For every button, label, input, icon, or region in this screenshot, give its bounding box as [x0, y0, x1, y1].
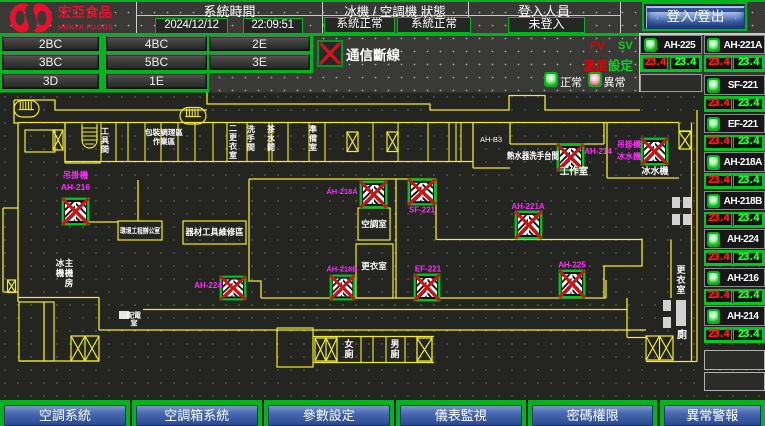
- svg-text:更衣室: 更衣室: [361, 261, 387, 271]
- svg-text:SF-221: SF-221: [409, 206, 436, 215]
- svg-text:更: 更: [229, 132, 238, 142]
- svg-text:二: 二: [229, 124, 237, 133]
- svg-text:冰: 冰: [56, 258, 65, 268]
- svg-text:EF-221: EF-221: [415, 265, 442, 274]
- svg-text:間: 間: [267, 143, 275, 152]
- svg-text:具: 具: [101, 136, 109, 145]
- svg-text:室: 室: [309, 142, 317, 152]
- svg-text:機: 機: [65, 268, 74, 278]
- svg-text:配電: 配電: [127, 311, 141, 320]
- svg-text:廁: 廁: [344, 348, 353, 359]
- svg-text:室: 室: [131, 319, 138, 328]
- svg-text:主: 主: [65, 258, 74, 268]
- svg-text:器材工具維修區: 器材工具維修區: [185, 227, 244, 237]
- svg-text:手: 手: [247, 133, 255, 143]
- svg-text:衣: 衣: [229, 141, 237, 151]
- svg-text:女: 女: [344, 338, 353, 349]
- svg-text:吊掛機: 吊掛機: [617, 139, 641, 149]
- svg-text:環境工程辦公室: 環境工程辦公室: [120, 226, 160, 235]
- svg-text:廁: 廁: [677, 328, 687, 341]
- svg-text:AH-214: AH-214: [584, 147, 612, 156]
- svg-text:準: 準: [309, 124, 317, 134]
- svg-text:廁: 廁: [390, 348, 399, 359]
- svg-text:男: 男: [390, 339, 399, 349]
- svg-text:備: 備: [309, 133, 317, 143]
- svg-text:AH-224: AH-224: [194, 281, 222, 290]
- svg-text:熱水器洗手台間: 熱水器洗手台間: [507, 150, 559, 161]
- svg-text:工作室: 工作室: [560, 166, 589, 178]
- svg-text:冰水機: 冰水機: [641, 165, 668, 176]
- svg-text:AH-218B: AH-218B: [326, 265, 358, 274]
- svg-text:水: 水: [266, 133, 276, 143]
- svg-text:室: 室: [229, 150, 237, 160]
- svg-text:空調室: 空調室: [361, 219, 387, 229]
- svg-text:作業區: 作業區: [153, 136, 176, 146]
- svg-text:室: 室: [676, 284, 685, 295]
- svg-text:冰水機: 冰水機: [617, 151, 641, 161]
- svg-text:AH-218A: AH-218A: [326, 187, 358, 196]
- svg-text:更: 更: [676, 265, 686, 275]
- svg-text:AH-B3: AH-B3: [480, 135, 502, 144]
- svg-text:工: 工: [101, 127, 109, 136]
- svg-text:機: 機: [56, 268, 65, 278]
- svg-text:間: 間: [247, 143, 255, 152]
- svg-text:間: 間: [101, 145, 109, 154]
- svg-text:茶: 茶: [266, 124, 276, 134]
- svg-text:房: 房: [65, 278, 74, 288]
- svg-text:洗: 洗: [247, 124, 255, 134]
- svg-text:包裝調理區: 包裝調理區: [144, 127, 184, 137]
- svg-text:衣: 衣: [676, 274, 685, 285]
- svg-text:AH-225: AH-225: [558, 261, 586, 270]
- svg-text:吊掛機: 吊掛機: [63, 170, 89, 180]
- svg-text:AH-221A: AH-221A: [511, 202, 545, 211]
- svg-text:AH-216: AH-216: [61, 182, 91, 192]
